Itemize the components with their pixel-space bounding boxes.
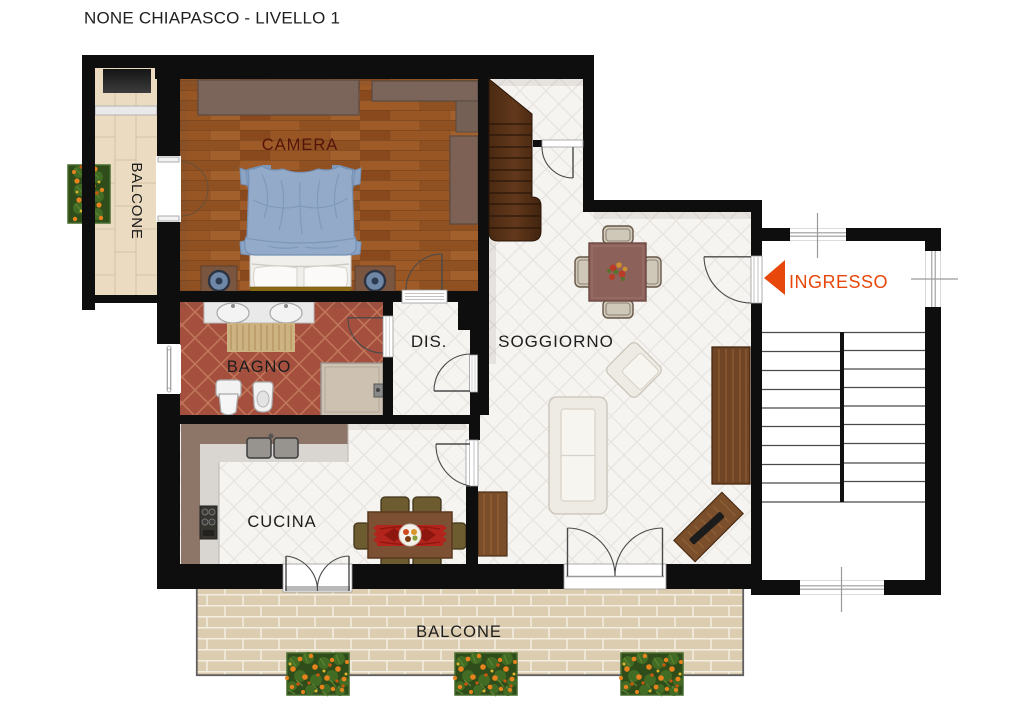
svg-text:BALCONE: BALCONE — [128, 162, 145, 239]
svg-text:NONE CHIAPASCO - LIVELLO 1: NONE CHIAPASCO - LIVELLO 1 — [84, 9, 340, 28]
svg-text:BALCONE: BALCONE — [416, 623, 502, 641]
svg-text:SOGGIORNO: SOGGIORNO — [498, 332, 614, 351]
svg-text:BAGNO: BAGNO — [227, 358, 292, 376]
svg-text:INGRESSO: INGRESSO — [789, 272, 888, 292]
svg-text:DIS.: DIS. — [411, 332, 447, 351]
svg-text:CAMERA: CAMERA — [262, 136, 339, 154]
svg-text:CUCINA: CUCINA — [247, 513, 316, 531]
